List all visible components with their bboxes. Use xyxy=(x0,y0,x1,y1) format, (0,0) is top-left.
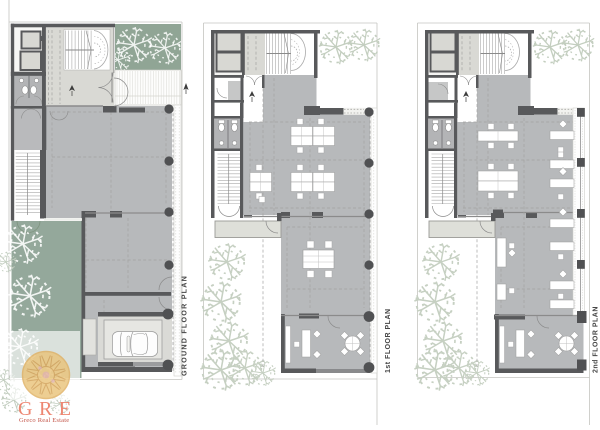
svg-text:2nd FLOOR PLAN: 2nd FLOOR PLAN xyxy=(593,306,600,373)
svg-text:1st FLOOR PLAN: 1st FLOOR PLAN xyxy=(385,308,392,373)
svg-text:GROUND FLOOR PLAN: GROUND FLOOR PLAN xyxy=(180,275,189,376)
svg-text:Greco Real Estate: Greco Real Estate xyxy=(19,417,69,424)
